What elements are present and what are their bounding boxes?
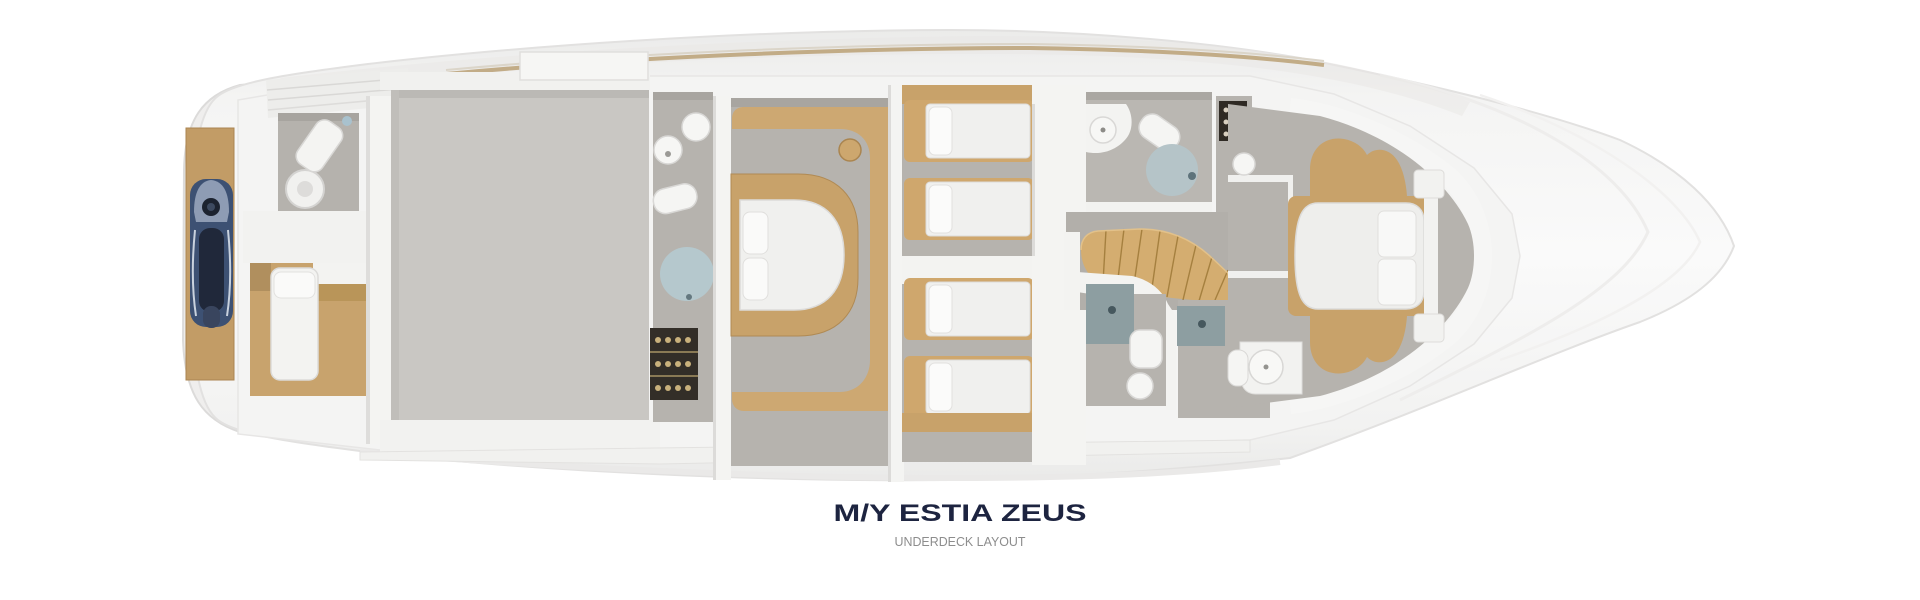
svg-text:UNDERDECK LAYOUT: UNDERDECK LAYOUT (895, 534, 1026, 549)
svg-text:M/Y ESTIA ZEUS: M/Y ESTIA ZEUS (834, 500, 1087, 527)
